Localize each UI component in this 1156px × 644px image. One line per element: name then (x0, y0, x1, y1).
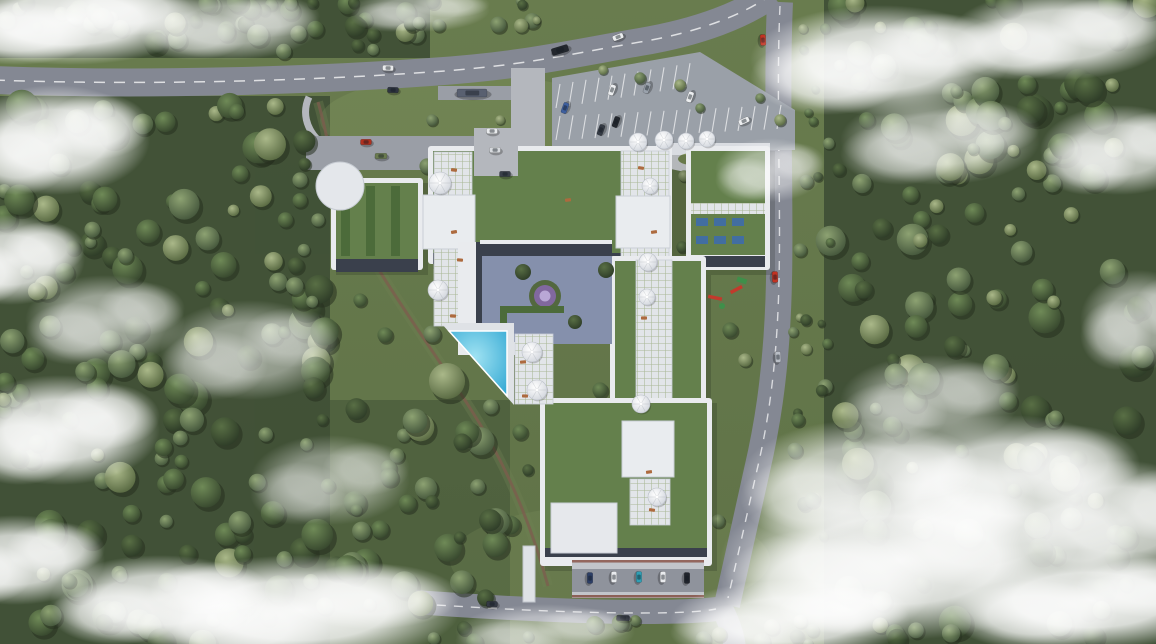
cloud-puff (241, 308, 340, 368)
tree (512, 424, 527, 439)
car-roof (661, 575, 665, 580)
lounger (565, 198, 571, 202)
car-roof (490, 129, 495, 133)
car-roof (465, 90, 479, 95)
tree (902, 186, 918, 202)
tree (254, 128, 286, 160)
cloud-puff (921, 362, 1020, 416)
tree (822, 339, 832, 349)
car-roof (612, 575, 616, 580)
tree (352, 522, 371, 541)
tree (832, 163, 845, 176)
car-roof (637, 575, 641, 580)
tree (490, 17, 506, 33)
tree (816, 385, 827, 396)
tree (905, 315, 928, 338)
roof-planter (366, 186, 375, 256)
lounger (457, 258, 463, 262)
tree (403, 409, 428, 434)
tree (948, 292, 972, 316)
cloud-puff (46, 93, 151, 159)
tree (1011, 241, 1033, 263)
cloud-puff (322, 442, 410, 496)
playground-equipment-green (719, 303, 725, 309)
roof-planter (391, 186, 400, 256)
tree (495, 115, 505, 125)
tree (278, 212, 293, 227)
tree (483, 399, 498, 414)
tree (211, 417, 240, 446)
cloud (50, 555, 270, 644)
tree (163, 469, 184, 490)
car-roof (588, 576, 592, 581)
tree (928, 224, 948, 244)
tree (169, 189, 200, 220)
tree (311, 213, 324, 226)
aerial-site-render (0, 0, 1156, 644)
tree (453, 433, 470, 450)
car-roof (503, 172, 508, 176)
car (454, 89, 491, 100)
white-roof-pavilion (423, 195, 475, 249)
tree (93, 187, 118, 212)
tree (264, 252, 283, 271)
cloud (160, 300, 340, 400)
tree (818, 320, 826, 328)
tree (298, 158, 310, 170)
cloud-puff (848, 429, 980, 501)
tree (293, 130, 315, 152)
tree (84, 222, 100, 238)
tree (826, 238, 835, 247)
tree (259, 427, 273, 441)
tree (1012, 187, 1025, 200)
tree (138, 362, 164, 388)
lounger (450, 314, 456, 317)
cloud (250, 435, 410, 525)
dome-tip (439, 182, 441, 184)
dome-tip (663, 139, 665, 141)
tree (517, 0, 527, 10)
cloud (740, 420, 980, 540)
residential-block-west (316, 162, 423, 272)
tree (429, 363, 465, 399)
tree (173, 431, 188, 446)
lounger (522, 394, 528, 397)
tree (196, 227, 220, 251)
tree (930, 199, 944, 213)
courtyard-tree (515, 264, 531, 280)
tree (298, 244, 310, 256)
tree (788, 327, 798, 337)
tree (426, 114, 437, 125)
cloud-puff (778, 586, 910, 634)
tree (479, 509, 501, 531)
white-roof-block (551, 503, 617, 553)
lounger (451, 168, 457, 172)
tree (674, 79, 685, 90)
round-canopy (316, 162, 364, 210)
tree (965, 203, 985, 223)
car-roof (378, 154, 384, 158)
cloud-puff (536, 608, 635, 642)
tree (454, 532, 466, 544)
tree (121, 535, 143, 557)
courtyard-tree (568, 315, 582, 329)
tree (175, 455, 188, 468)
tree (367, 44, 379, 56)
cloud-puff (765, 143, 826, 181)
tree (377, 327, 392, 342)
cloud (950, 0, 1156, 80)
tree (695, 103, 705, 113)
tree (851, 252, 869, 270)
tree (292, 172, 307, 187)
white-roof-pavilion (622, 421, 674, 477)
cloud-puff (930, 102, 1040, 156)
dome-tip (437, 289, 439, 291)
tree (191, 477, 221, 507)
tree (722, 322, 737, 337)
white-roof-pavilion (616, 196, 670, 248)
cloud-puff (284, 563, 460, 629)
carport-trim (572, 560, 704, 563)
dome-tip (649, 185, 651, 187)
tree (136, 219, 160, 243)
tree (228, 205, 239, 216)
dome-tip (531, 351, 533, 353)
tree (160, 515, 173, 528)
block-east-walkway (691, 203, 765, 214)
dome-tip (706, 138, 708, 140)
tree (1064, 207, 1079, 222)
tree (1054, 101, 1066, 113)
dome-tip (640, 403, 642, 405)
cloud-puff (3, 222, 86, 276)
cloud (840, 95, 1040, 185)
tree (345, 398, 367, 420)
tree (1113, 406, 1142, 435)
tree (774, 114, 785, 125)
tree (293, 193, 308, 208)
tree (470, 479, 485, 494)
courtyard-north-edge (480, 240, 612, 244)
tree (592, 382, 607, 397)
car-roof (490, 602, 495, 606)
tree (317, 414, 329, 426)
masterplan-scene (0, 0, 1156, 644)
tree (947, 268, 971, 292)
tree (118, 248, 133, 263)
tree (211, 252, 237, 278)
tree (195, 281, 210, 296)
tree (913, 233, 927, 247)
tree (1105, 78, 1119, 92)
tree (986, 290, 1001, 305)
tree (860, 315, 889, 344)
cloud (715, 138, 825, 202)
tree (351, 39, 364, 52)
tree (123, 505, 140, 522)
car-roof (685, 576, 689, 581)
car-roof (391, 88, 396, 92)
tree (800, 314, 811, 325)
tree (306, 296, 318, 308)
tree (425, 495, 438, 508)
stair-walkway (523, 546, 535, 602)
dome-tip (685, 140, 687, 142)
tree (855, 281, 873, 299)
tree (1047, 296, 1060, 309)
dome-tip (656, 496, 658, 498)
courtyard-hedge (500, 306, 564, 313)
dome-tip (647, 261, 649, 263)
tree (634, 72, 645, 83)
car-roof (493, 148, 498, 152)
tree (288, 257, 304, 273)
tree (793, 243, 806, 256)
car-roof (386, 66, 391, 70)
tree (155, 111, 176, 132)
cloud-puff (50, 383, 160, 449)
tree (232, 165, 249, 182)
tree (250, 185, 272, 207)
tree (738, 353, 751, 366)
lounger (520, 360, 526, 364)
courtyard-north-facade (480, 244, 612, 256)
tree (229, 104, 244, 119)
tree (1004, 224, 1016, 236)
car-roof (773, 275, 777, 280)
block-west-facade (336, 259, 418, 272)
tree (823, 138, 835, 150)
lounger (641, 316, 647, 319)
tree (371, 520, 389, 538)
tree (791, 413, 804, 426)
tree (180, 407, 204, 431)
tree (286, 277, 303, 294)
tree (944, 336, 965, 357)
tree (522, 464, 533, 475)
tree (229, 511, 252, 534)
tree (163, 235, 189, 261)
tree (269, 273, 287, 291)
dome-tip (646, 296, 648, 298)
carport-trim (572, 595, 704, 598)
tree (598, 65, 608, 75)
tree (267, 98, 284, 115)
tree (423, 325, 440, 342)
tree (533, 16, 541, 24)
tree (353, 293, 366, 306)
tree (0, 329, 24, 353)
cloud-puff (149, 562, 270, 616)
tree (872, 218, 891, 237)
car-roof (364, 140, 369, 144)
tree (483, 531, 509, 557)
dome-tip (637, 141, 639, 143)
car-roof (776, 355, 780, 360)
courtyard-tree (598, 262, 614, 278)
mandala-core (540, 291, 551, 302)
dome-tip (536, 389, 538, 391)
tree (801, 344, 812, 355)
tree (514, 19, 528, 33)
